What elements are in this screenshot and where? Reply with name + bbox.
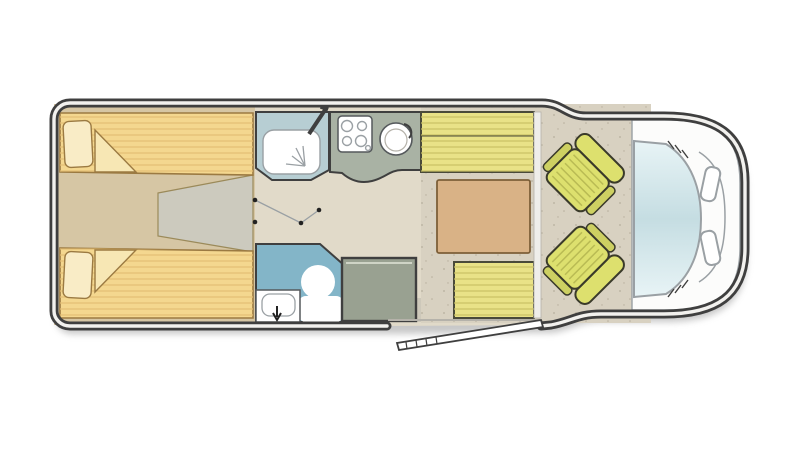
wardrobe (342, 258, 416, 321)
dinette-table (437, 180, 530, 253)
twin-bed-bottom (60, 248, 253, 318)
floorplan-canvas (0, 0, 800, 449)
bulkhead-band (534, 112, 541, 318)
cab-front (632, 120, 740, 310)
toilet-room (256, 244, 345, 322)
toilet-base (298, 296, 344, 322)
dinette-bench-rear (454, 262, 534, 318)
pillow-top (63, 120, 93, 167)
shower-room (256, 102, 330, 180)
pillow-bottom (63, 251, 93, 298)
dinette-bench-front (421, 112, 534, 172)
toilet-bowl (301, 265, 335, 299)
shower-tray (263, 130, 320, 174)
floorplan-figure (0, 0, 800, 449)
twin-bed-top (60, 113, 253, 175)
